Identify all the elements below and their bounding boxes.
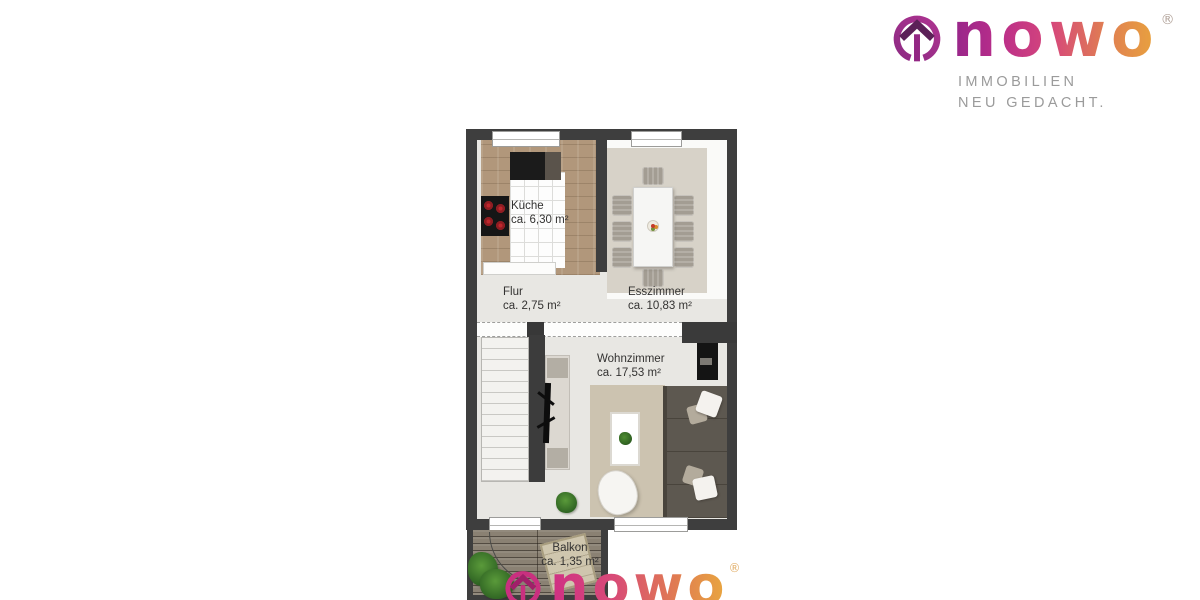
dining-chair bbox=[674, 221, 694, 242]
floorplan-page: nowo ® IMMOBILIEN NEU GEDACHT. bbox=[0, 0, 1200, 600]
label-flur: Flur ca. 2,75 m² bbox=[503, 285, 561, 313]
dining-chair bbox=[612, 195, 632, 216]
brand-tagline-line1: IMMOBILIEN bbox=[958, 72, 1189, 93]
kitchen-counter bbox=[483, 262, 556, 275]
tv-panel-detail bbox=[700, 358, 712, 365]
label-kueche: Küche ca. 6,30 m² bbox=[511, 199, 569, 227]
watermark-wordmark: nowo bbox=[550, 563, 729, 600]
stair-wall bbox=[529, 335, 545, 482]
wall-kueche-esszimmer bbox=[596, 140, 607, 272]
sofa-pillow bbox=[692, 475, 718, 501]
ceiling-beam-dashed-line bbox=[477, 322, 682, 337]
watermark-logo: nowo ® bbox=[502, 561, 741, 600]
plant bbox=[619, 432, 632, 445]
nowo-home-icon bbox=[502, 567, 544, 600]
dining-chair bbox=[674, 247, 694, 268]
watermark-registered-mark: ® bbox=[729, 561, 741, 575]
brand-tagline-line2: NEU GEDACHT. bbox=[958, 93, 1189, 114]
label-esszimmer: Esszimmer ca. 10,83 m² bbox=[628, 285, 692, 313]
floor-plan: Küche ca. 6,30 m² Flur ca. 2,75 m² Esszi… bbox=[466, 129, 737, 600]
window bbox=[614, 517, 688, 532]
kitchen-appliance bbox=[510, 152, 545, 180]
label-wohnzimmer: Wohnzimmer ca. 17,53 m² bbox=[597, 352, 665, 380]
dining-chair bbox=[674, 195, 694, 216]
stove-cooktop bbox=[481, 196, 509, 236]
dining-chair bbox=[642, 167, 664, 185]
window bbox=[492, 131, 560, 147]
staircase bbox=[481, 337, 529, 482]
dining-chair bbox=[612, 221, 632, 242]
brand-registered-mark: ® bbox=[1161, 12, 1175, 28]
plant bbox=[556, 492, 577, 513]
wall-left bbox=[466, 129, 477, 530]
wall-corner-block bbox=[682, 322, 737, 343]
dining-chair bbox=[612, 247, 632, 268]
brand-wordmark: nowo bbox=[952, 8, 1159, 62]
window bbox=[631, 131, 682, 147]
nowo-home-icon bbox=[889, 10, 945, 66]
brand-logo: nowo ® IMMOBILIEN NEU GEDACHT. bbox=[889, 6, 1189, 114]
fruit-bowl bbox=[647, 220, 659, 232]
kitchen-sink bbox=[545, 152, 561, 180]
